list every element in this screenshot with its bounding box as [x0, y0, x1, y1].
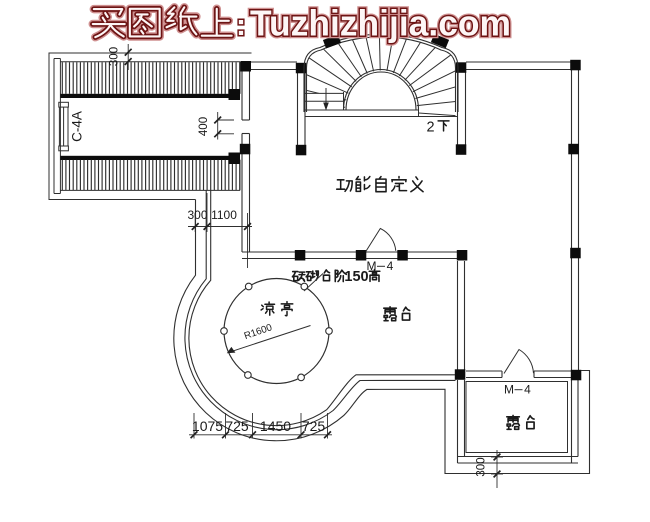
svg-text:1100: 1100 [211, 208, 237, 222]
svg-text:4: 4 [387, 259, 394, 273]
svg-text:M: M [504, 383, 514, 397]
svg-text:300: 300 [109, 47, 121, 66]
svg-text:4: 4 [524, 383, 531, 397]
svg-text:1450: 1450 [260, 418, 291, 434]
svg-text:2: 2 [426, 120, 434, 136]
svg-text:725: 725 [302, 418, 326, 434]
svg-text:Tuzhizhijia.com: Tuzhizhijia.com [250, 3, 511, 44]
svg-text:400: 400 [198, 117, 210, 136]
svg-text:150: 150 [344, 269, 368, 285]
svg-text:C-4A: C-4A [70, 111, 85, 142]
svg-text:300: 300 [476, 457, 488, 476]
svg-text:300: 300 [187, 208, 207, 222]
svg-text::: : [236, 9, 246, 42]
